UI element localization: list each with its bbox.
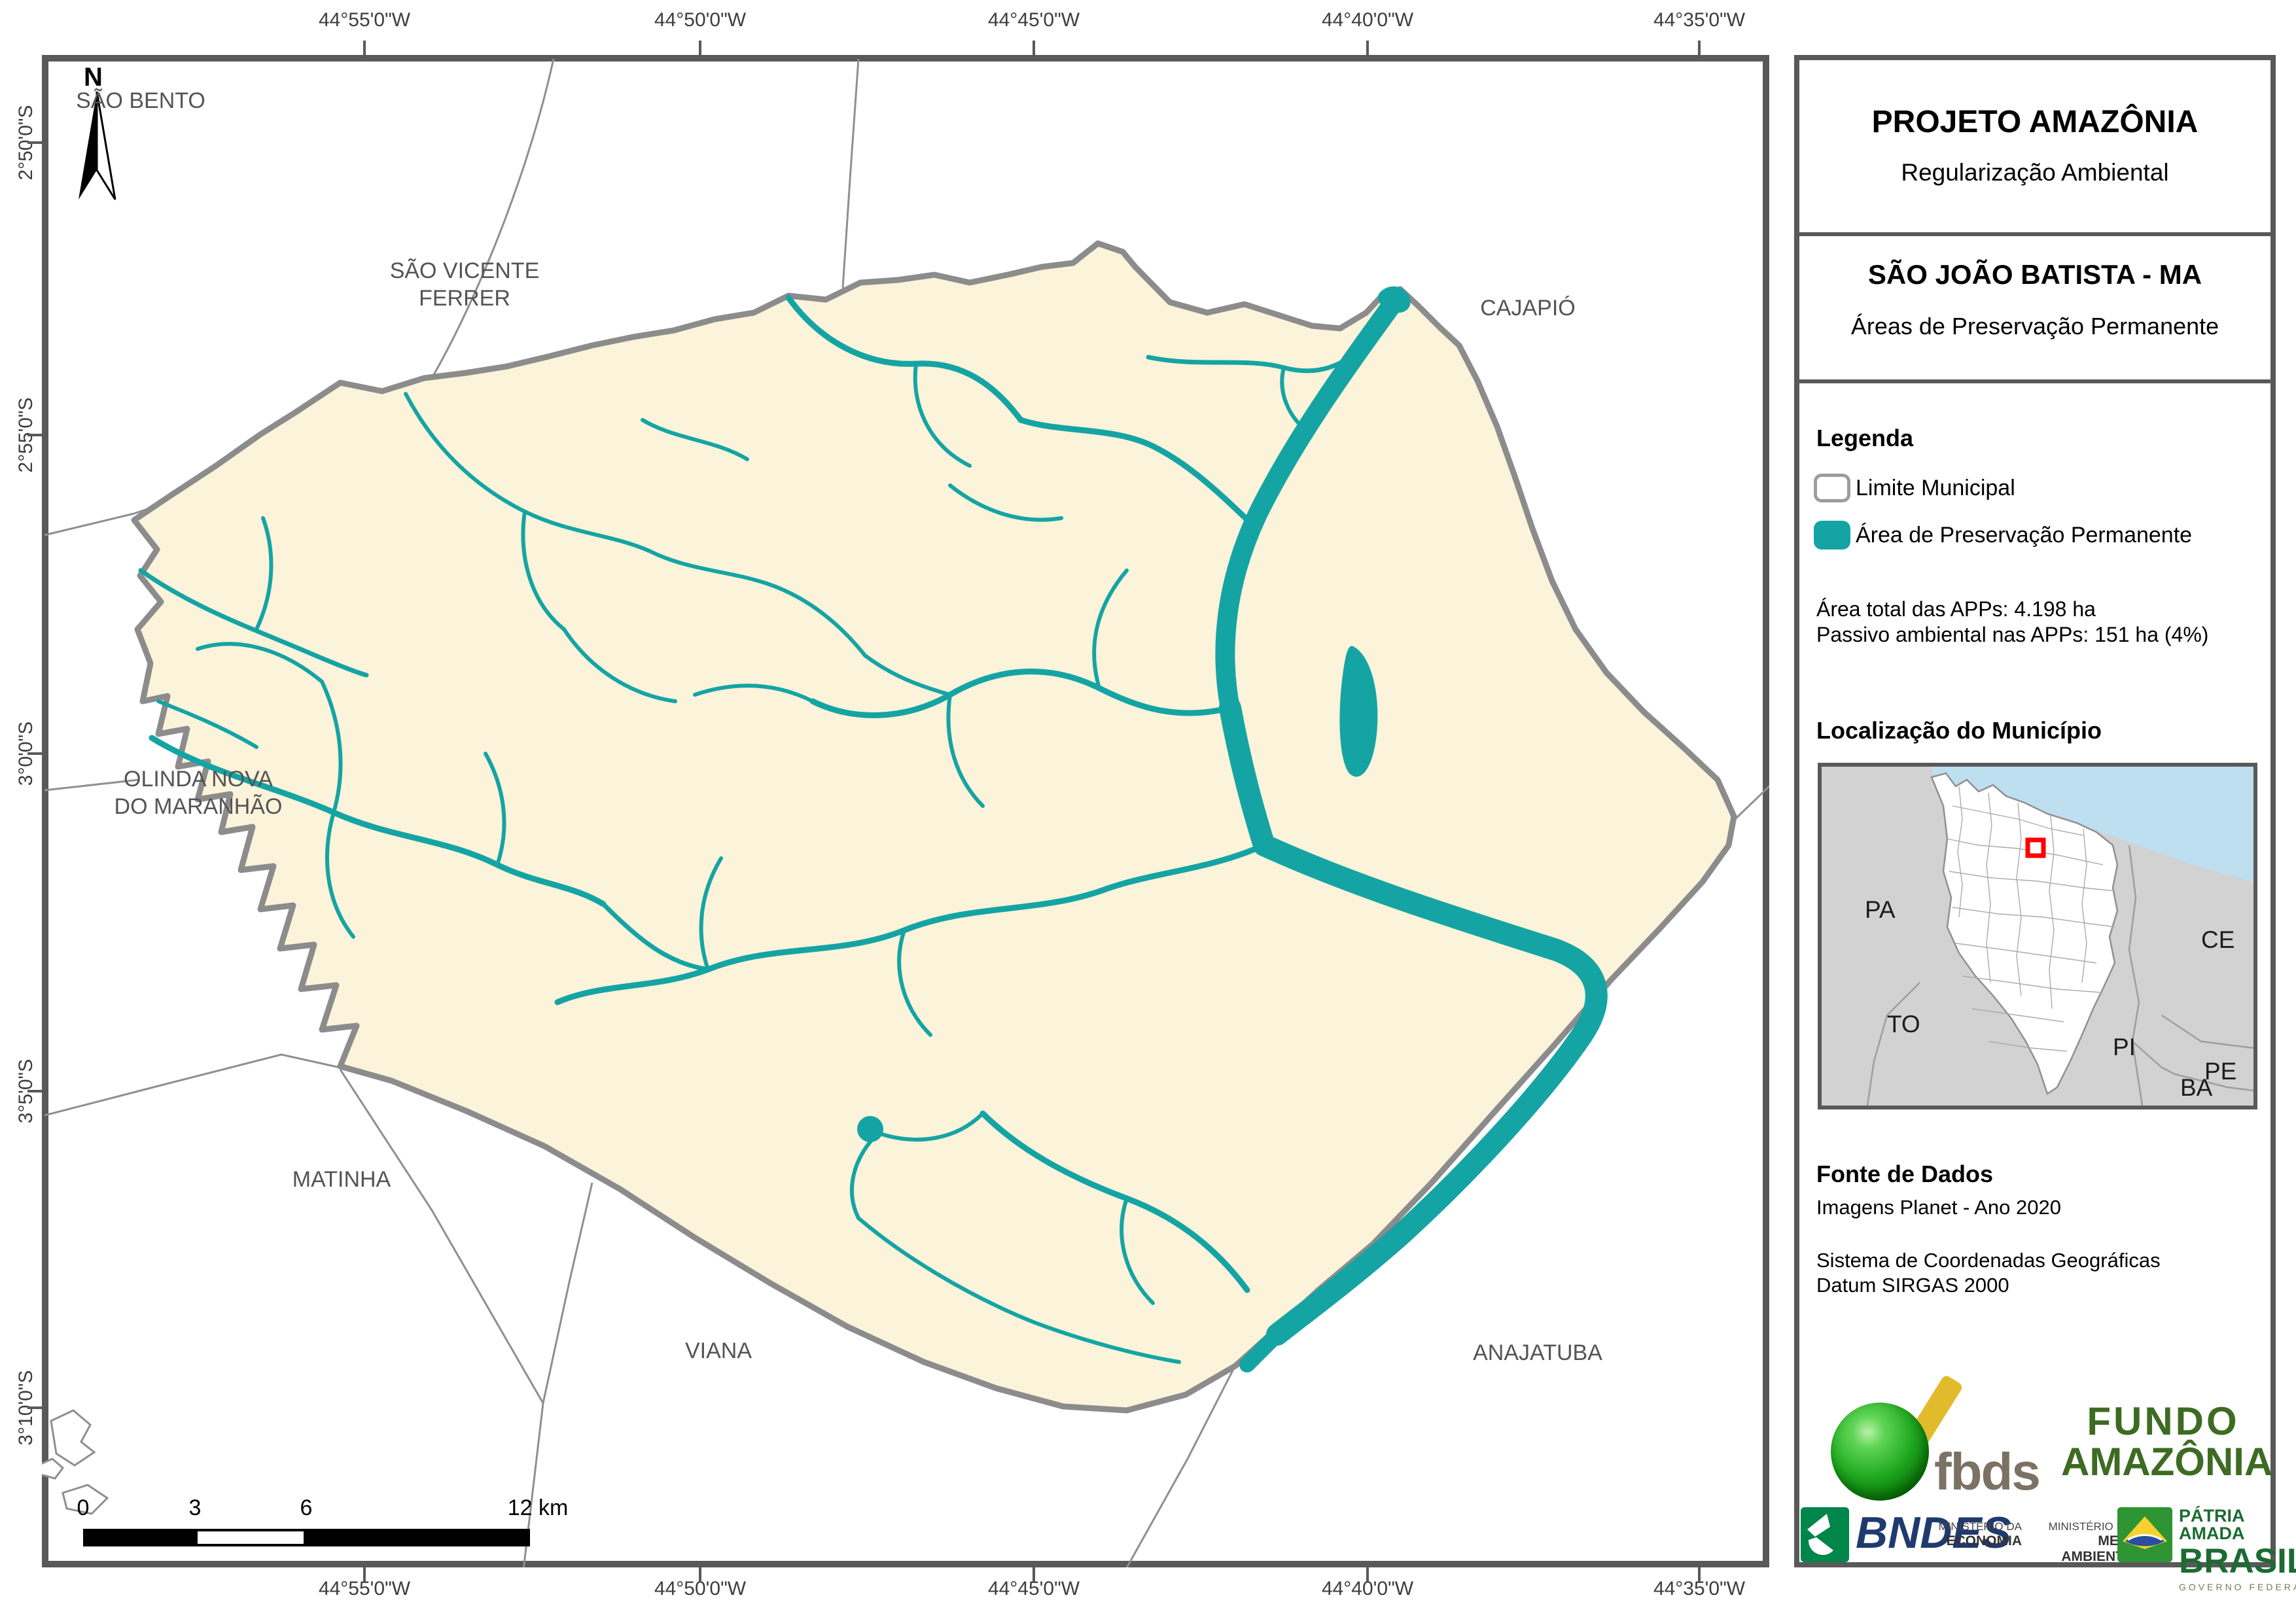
map-subject: Áreas de Preservação Permanente: [1799, 313, 2270, 340]
axis-tick: [363, 1567, 366, 1582]
governo-federal-logo: PÁTRIA AMADA BRASIL GOVERNO FEDERAL: [2179, 1507, 2270, 1592]
axis-label-lon: 44°50'0"W: [622, 9, 779, 31]
axis-label-lon: 44°55'0"W: [286, 9, 443, 31]
place-label-sao-bento: SÃO BENTO: [62, 87, 219, 114]
axis-tick: [1033, 1567, 1035, 1582]
state-label-to: TO: [1887, 1011, 1920, 1038]
axis-tick: [363, 41, 366, 55]
bndes-icon: [1801, 1507, 1849, 1562]
place-label-viana: VIANA: [666, 1337, 771, 1365]
axis-tick: [1366, 41, 1369, 55]
place-label-matinha: MATINHA: [276, 1166, 407, 1193]
scalebar-label-6: 6: [254, 1495, 359, 1521]
axis-tick: [27, 752, 42, 755]
governo-federal-line: GOVERNO FEDERAL: [2179, 1582, 2270, 1592]
municipality-marker: [2028, 840, 2043, 856]
source-line: Sistema de Coordenadas Geográficas: [1816, 1249, 2161, 1272]
ministerio-economia-logo: MINISTÉRIO DA ECONOMIA: [1918, 1520, 2022, 1549]
source-line: Imagens Planet - Ano 2020: [1816, 1196, 2061, 1219]
state-label-pa: PA: [1865, 896, 1896, 924]
project-subtitle: Regularização Ambiental: [1799, 159, 2270, 186]
place-label-sao-vicente-ferrer: SÃO VICENTE FERRER: [366, 257, 563, 312]
legend-label: Área de Preservação Permanente: [1856, 523, 2192, 548]
side-panel: PROJETO AMAZÔNIA Regularização Ambiental…: [1794, 55, 2276, 1567]
axis-tick: [27, 1406, 42, 1409]
axis-tick: [27, 1090, 42, 1092]
legend-swatch-app: [1814, 521, 1850, 550]
fundo-amazonia-logo: FUNDO AMAZÔNIA: [2061, 1401, 2265, 1483]
state-label-ba: BA: [2180, 1074, 2212, 1102]
place-label-anajatuba: ANAJATUBA: [1459, 1339, 1616, 1367]
axis-tick: [699, 41, 701, 55]
divider: [1799, 379, 2270, 383]
fundo-amazonia-line1: FUNDO: [2061, 1401, 2265, 1442]
locator-map-graphic: [1822, 767, 2253, 1106]
patria-amada-line: PÁTRIA AMADA: [2179, 1507, 2270, 1543]
scalebar-label-12: 12 km: [486, 1495, 590, 1521]
scalebar-label-0: 0: [31, 1495, 135, 1521]
source-line: Datum SIRGAS 2000: [1816, 1274, 2009, 1297]
scale-bar-segment: [195, 1529, 306, 1546]
ministerio-economia-line2: ECONOMIA: [1918, 1533, 2022, 1549]
legend-label: Limite Municipal: [1856, 476, 2015, 501]
state-label-ce: CE: [2201, 926, 2234, 954]
fbds-logo-sphere: [1831, 1403, 1929, 1501]
project-title: PROJETO AMAZÔNIA: [1799, 104, 2270, 140]
divider: [1799, 232, 2270, 236]
legend-header: Legenda: [1816, 425, 1913, 452]
axis-tick: [27, 141, 42, 144]
governo-federal-flag-icon: [2117, 1507, 2172, 1562]
axis-tick: [699, 1567, 701, 1582]
axis-tick: [27, 434, 42, 436]
state-label-pi: PI: [2113, 1034, 2136, 1061]
axis-tick: [1698, 41, 1701, 55]
axis-label-lon: 44°45'0"W: [955, 9, 1112, 31]
fundo-amazonia-line2: AMAZÔNIA: [2061, 1442, 2265, 1482]
municipality-title: SÃO JOÃO BATISTA - MA: [1799, 259, 2270, 290]
place-label-olinda-nova: OLINDA NOVA DO MARANHÃO: [100, 765, 296, 820]
source-header: Fonte de Dados: [1816, 1161, 1993, 1188]
locator-map: PA CE PI PE BA TO: [1818, 763, 2257, 1109]
location-header: Localização do Município: [1816, 717, 2102, 744]
legend-swatch-limite-municipal: [1814, 474, 1850, 502]
place-label-cajapio: CAJAPIÓ: [1456, 294, 1600, 322]
scalebar-label-3: 3: [143, 1495, 247, 1521]
brasil-line: BRASIL: [2179, 1544, 2270, 1579]
scale-bar: [83, 1529, 530, 1546]
app-passivo-stat: Passivo ambiental nas APPs: 151 ha (4%): [1816, 623, 2208, 647]
axis-label-lon: 44°40'0"W: [1289, 9, 1446, 31]
ministerio-economia-line1: MINISTÉRIO DA: [1918, 1520, 2022, 1533]
axis-tick: [1033, 41, 1035, 55]
fbds-logo-text: fbds: [1934, 1442, 2040, 1502]
axis-label-lon: 44°35'0"W: [1621, 9, 1778, 31]
axis-tick: [1698, 1567, 1701, 1582]
axis-tick: [1366, 1567, 1369, 1582]
app-total-stat: Área total das APPs: 4.198 ha: [1816, 597, 2096, 621]
